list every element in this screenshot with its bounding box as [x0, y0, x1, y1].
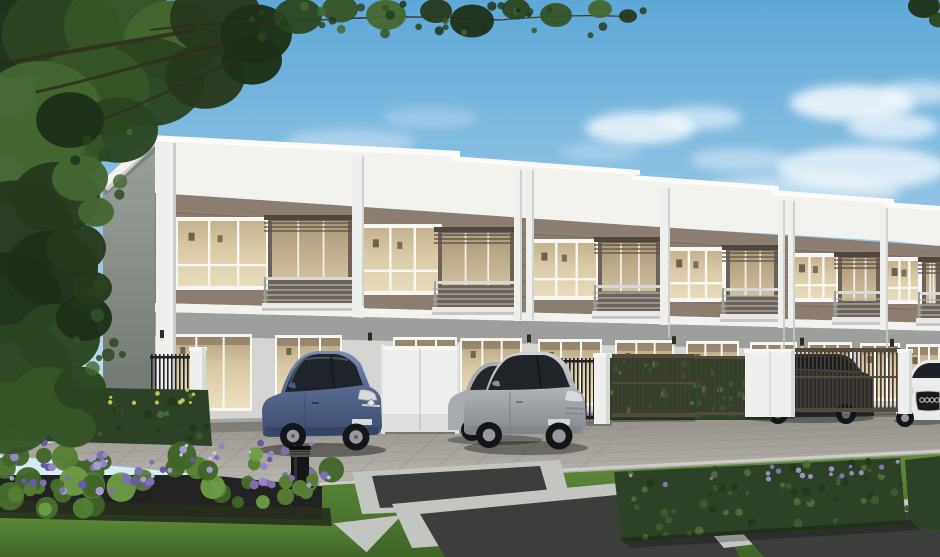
- purple-flower: [167, 468, 172, 473]
- white-car-rim: [901, 414, 909, 422]
- slab-shadow: [432, 312, 520, 315]
- interior-picture: [562, 255, 567, 262]
- lamp-cap: [289, 446, 311, 450]
- leaf-speck: [91, 308, 104, 321]
- gate-slat: [844, 350, 846, 412]
- gate-slat: [800, 350, 802, 412]
- blue-hub: [291, 434, 295, 438]
- hedge-leaf: [670, 524, 674, 528]
- gate-slat: [888, 350, 890, 412]
- upper-window: [174, 217, 270, 290]
- hedge-leaf: [887, 509, 894, 516]
- purple-flower: [130, 477, 139, 486]
- purple-flower: [190, 457, 195, 462]
- purple-flower: [95, 487, 103, 495]
- gate-slat: [804, 350, 806, 412]
- gate-slat: [860, 350, 862, 412]
- leaf-speck: [526, 12, 531, 17]
- purple-flower: [214, 455, 219, 460]
- hedge-leaf: [665, 516, 672, 523]
- leaf-speck: [531, 28, 537, 34]
- window-mullion-v: [208, 221, 210, 286]
- gate-slat: [668, 356, 670, 416]
- gate-slat: [647, 356, 649, 416]
- balcony-glass-doors: [602, 243, 656, 291]
- flower-foliage: [107, 472, 137, 502]
- flower-foliage: [73, 498, 94, 519]
- purple-flower: [109, 488, 115, 494]
- tree-foliage: [54, 367, 106, 410]
- hedge-leaf: [699, 500, 708, 509]
- fin-shade: [532, 170, 534, 320]
- upper-window: [360, 224, 442, 295]
- hedge-flower-speck: [776, 468, 781, 473]
- interior-picture: [180, 347, 185, 354]
- sconce-glow: [161, 338, 164, 341]
- purple-flower: [88, 455, 95, 462]
- white-car-grille: [916, 391, 940, 411]
- hedge-leaf: [861, 498, 867, 504]
- hedge-leaf: [840, 477, 849, 486]
- hedge-leaf: [671, 509, 676, 514]
- cloud: [560, 142, 640, 162]
- hedge-leaf: [164, 411, 169, 416]
- window-mullion-v: [555, 243, 557, 296]
- pergola-beam: [434, 227, 518, 232]
- gate-slat: [832, 350, 834, 412]
- purple-flower: [29, 479, 37, 487]
- yellow-flower: [192, 393, 195, 396]
- pillar-shade: [606, 354, 610, 424]
- balcony-door-mullion: [487, 233, 489, 285]
- fin-shade: [668, 188, 670, 338]
- leaf-speck: [482, 25, 487, 30]
- window-mullion-v: [898, 261, 900, 300]
- gate-bottom-shade: [383, 414, 457, 432]
- leaf-speck: [258, 33, 267, 42]
- balcony-slab: [832, 317, 886, 322]
- gate-rail: [612, 354, 695, 358]
- purple-flower: [289, 475, 295, 481]
- fence-bar: [719, 358, 721, 416]
- purple-flower: [41, 462, 47, 468]
- hedge-leaf: [786, 483, 792, 489]
- fence-bar: [710, 358, 712, 416]
- gate-slat: [659, 356, 661, 416]
- gate-slat: [836, 350, 838, 412]
- leaf-speck: [487, 2, 496, 11]
- purple-flower: [268, 481, 276, 489]
- upper-window: [790, 253, 840, 302]
- yellow-flower: [185, 388, 189, 392]
- purple-flower: [48, 463, 56, 471]
- window-glass: [794, 257, 836, 298]
- hedge-leaf: [866, 458, 872, 464]
- leaf-speck: [102, 348, 115, 361]
- gate-slat: [634, 356, 636, 416]
- slab-shadow: [832, 322, 886, 325]
- interior-picture: [373, 239, 379, 247]
- hedge-flower-speck: [770, 465, 774, 469]
- hedge-leaf: [626, 478, 633, 485]
- hedge-flower-speck: [829, 472, 833, 476]
- pergola-beam: [918, 257, 940, 262]
- wall-sconce: [160, 330, 164, 338]
- hedge-leaf: [642, 486, 648, 492]
- hedge-leaf: [778, 506, 787, 515]
- window-mullion-v: [808, 257, 810, 298]
- flower-highlight: [212, 451, 216, 455]
- hedge-leaf: [807, 497, 812, 502]
- hedge-leaf: [176, 422, 183, 429]
- flower-foliage: [256, 495, 270, 509]
- leaf-speck: [587, 32, 593, 38]
- flower-foliage: [249, 447, 263, 461]
- window-glass: [670, 251, 722, 298]
- yellow-flower: [155, 391, 160, 396]
- purple-flower: [78, 480, 87, 489]
- leaf-speck: [113, 174, 127, 188]
- hedge-leaf: [631, 496, 636, 501]
- purple-flower: [219, 442, 225, 448]
- hedge-leaf: [196, 433, 203, 440]
- gate-slat: [613, 356, 615, 416]
- balcony: [832, 252, 886, 325]
- window-glass: [888, 261, 918, 300]
- window-mullion-h: [888, 287, 918, 289]
- interior-picture: [471, 351, 476, 358]
- hedge-leaf: [735, 508, 743, 516]
- gate-slat: [872, 350, 874, 412]
- window-mullion-v: [688, 251, 690, 298]
- wall-sconce: [672, 336, 676, 344]
- yellow-flower: [109, 396, 112, 399]
- scene-svg: [0, 0, 940, 557]
- wall-sconce: [527, 334, 531, 342]
- wall-sconce: [890, 339, 894, 347]
- hedge-flower-speck: [829, 466, 834, 471]
- interior-picture: [892, 268, 898, 276]
- balcony-door-mullion: [465, 233, 467, 285]
- fence-bar: [696, 358, 698, 416]
- gate-slat: [680, 356, 682, 416]
- gate-slat: [638, 356, 640, 416]
- tree-foliage: [36, 92, 104, 148]
- hedge-leaf: [818, 484, 825, 491]
- hedge-leaf: [703, 476, 708, 481]
- leaf-speck: [461, 29, 467, 35]
- hedge-leaf: [867, 468, 871, 472]
- leaf-speck: [109, 338, 118, 347]
- hedge-flower-speck: [896, 460, 900, 464]
- fence-shadow: [795, 413, 902, 417]
- hedge-leaf: [885, 471, 892, 478]
- purple-flower: [149, 460, 154, 465]
- silver-door-handle: [516, 401, 523, 403]
- interior-picture: [799, 264, 805, 272]
- balcony: [592, 237, 666, 319]
- fin-shade: [783, 200, 785, 350]
- gate-slat: [892, 350, 894, 412]
- fence-bar: [737, 358, 739, 416]
- leaf-speck: [599, 22, 608, 31]
- fence-bar: [723, 358, 725, 416]
- leaf-speck: [383, 5, 390, 12]
- door-glass-top-shade: [277, 338, 340, 346]
- gate-slat: [880, 350, 882, 412]
- gate-slat: [820, 350, 822, 412]
- leaf-speck: [300, 2, 309, 11]
- purple-flower: [93, 461, 102, 470]
- gate-slat: [684, 356, 686, 416]
- leaf-speck: [317, 7, 327, 17]
- leaf-speck: [119, 351, 126, 358]
- hedge-leaf: [660, 509, 668, 517]
- purple-flower: [268, 451, 274, 457]
- door-glass-top-shade: [617, 343, 672, 351]
- hedge-leaf: [145, 401, 151, 407]
- rendering-townhouse-scene: [0, 0, 940, 557]
- purple-flower: [140, 476, 146, 482]
- upper-window: [530, 239, 600, 300]
- hedge-leaf: [833, 518, 838, 523]
- hedge-leaf: [777, 489, 784, 496]
- window-glass: [178, 221, 266, 286]
- purple-flower: [134, 467, 142, 475]
- gate-slat: [864, 350, 866, 412]
- lamp-diffuser: [290, 449, 310, 457]
- gate-rail: [795, 408, 900, 412]
- slab-shadow: [592, 316, 666, 319]
- tree-foliage: [52, 155, 108, 201]
- window-mullion-v: [414, 228, 416, 291]
- balcony: [262, 215, 358, 311]
- fin-shade: [793, 201, 795, 351]
- hedge-leaf: [203, 424, 209, 430]
- leaf-speck: [435, 26, 444, 35]
- gate-slat: [676, 356, 678, 416]
- tree-leaf-cluster: [588, 0, 612, 18]
- fence-bar: [732, 358, 734, 416]
- hedge-flower-speck: [663, 482, 668, 487]
- flower-highlight: [249, 451, 252, 454]
- hedge-leaf: [871, 495, 880, 504]
- leaf-speck: [82, 136, 92, 146]
- hedge-flower-speck: [796, 467, 802, 473]
- fence-shadow: [612, 418, 695, 422]
- hedge-leaf: [899, 482, 903, 486]
- slab-shadow: [262, 308, 358, 311]
- hedge-leaf: [876, 483, 880, 487]
- hedge-leaf: [709, 506, 717, 514]
- interior-picture: [397, 242, 402, 249]
- yellow-flower: [108, 400, 112, 404]
- hedge-leaf: [861, 465, 867, 471]
- fence-bar: [701, 358, 703, 416]
- gate-slat: [689, 356, 691, 416]
- interior-picture: [286, 348, 291, 355]
- gate-slat: [651, 356, 653, 416]
- hedge-leaf: [731, 484, 738, 491]
- hedge-leaf: [707, 491, 711, 495]
- hedge-speck: [728, 381, 734, 387]
- tree-leaf-cluster: [619, 9, 637, 23]
- gate-slat: [812, 350, 814, 412]
- gate-slat: [824, 350, 826, 412]
- tree-leaf-cluster: [450, 5, 494, 38]
- hedge-leaf: [811, 469, 816, 474]
- railing-top: [917, 292, 940, 295]
- leaf-speck: [85, 361, 99, 375]
- hedge-leaf: [143, 410, 152, 419]
- leaf-speck: [329, 17, 337, 25]
- fin-shade: [362, 156, 364, 306]
- window-mullion-v: [237, 221, 239, 286]
- door-glass-top-shade: [168, 337, 250, 345]
- flower-highlight: [151, 474, 155, 478]
- pergola-beam: [722, 245, 782, 250]
- hedge-leaf: [116, 426, 122, 432]
- gate-slat: [884, 350, 886, 412]
- leaf-speck: [67, 393, 76, 402]
- door-mullion: [223, 337, 225, 408]
- hedge-leaf: [728, 491, 732, 495]
- gate-rail: [612, 382, 695, 384]
- leaf-speck: [94, 277, 109, 292]
- hedge-leaf: [849, 501, 855, 507]
- railing-top: [263, 277, 357, 280]
- hedge-leaf: [716, 478, 722, 484]
- leaf-speck: [96, 355, 102, 361]
- hedge-leaf: [848, 511, 856, 519]
- leaf-speck: [70, 155, 80, 165]
- yellow-flower: [132, 401, 136, 405]
- fence-rail: [695, 412, 752, 415]
- leaf-speck: [385, 10, 395, 20]
- balcony-door-mullion: [638, 243, 640, 291]
- cloud: [658, 106, 742, 130]
- gate-rail: [795, 348, 900, 352]
- flower-highlight: [185, 444, 188, 447]
- gate-slat: [868, 350, 870, 412]
- gate-slat: [876, 350, 878, 412]
- fence-bar: [728, 358, 730, 416]
- interior-picture: [693, 261, 698, 268]
- purple-flower: [147, 478, 154, 485]
- purple-flower: [267, 457, 273, 463]
- window-mullion-h: [670, 282, 722, 284]
- upper-window: [884, 257, 922, 304]
- cloud: [847, 113, 939, 141]
- gate-rail: [795, 376, 900, 378]
- railing-top: [833, 291, 885, 294]
- wall-sconce: [800, 338, 804, 346]
- gate-slat: [617, 356, 619, 416]
- leaf-speck: [516, 8, 521, 13]
- silver-rim: [483, 429, 496, 442]
- leaf-speck: [112, 405, 122, 415]
- hedge-leaf: [646, 479, 654, 487]
- hedge-flower-speck: [710, 477, 713, 480]
- interior-picture: [189, 233, 195, 241]
- hedge-flower-speck: [849, 465, 853, 469]
- hedge-leaf: [167, 402, 172, 407]
- purple-flower: [281, 447, 289, 455]
- tree-foliage: [78, 197, 114, 227]
- hedge-flower-speck: [839, 473, 844, 478]
- gate-slat: [655, 356, 657, 416]
- pergola-beam: [264, 215, 356, 220]
- hedge-leaf: [744, 469, 751, 476]
- balcony-door-mullion: [323, 221, 325, 278]
- leaf-speck: [126, 129, 132, 135]
- leaf-speck: [114, 189, 124, 199]
- balcony-glass-doors: [272, 221, 348, 278]
- pergola-beam: [834, 252, 884, 257]
- hedge-leaf: [793, 498, 800, 505]
- hedge-leaf: [190, 425, 197, 432]
- purple-flower: [9, 476, 14, 481]
- tree-foliage: [46, 223, 106, 272]
- railing-top: [593, 285, 665, 288]
- leaf-speck: [337, 25, 346, 34]
- hedge-leaf: [780, 483, 785, 488]
- hedge-leaf: [803, 460, 811, 468]
- flower-highlight: [208, 456, 212, 460]
- window-mullion-v: [389, 228, 391, 291]
- balcony-glass-doors: [442, 233, 510, 285]
- pillar-shade: [909, 350, 912, 414]
- balcony-slab: [262, 303, 358, 308]
- flower-foliage: [299, 485, 313, 499]
- hedge-flower-speck: [849, 471, 854, 476]
- gate-rail: [612, 413, 695, 417]
- hedge-leaf: [864, 477, 868, 481]
- window-mullion-h: [178, 264, 266, 266]
- upper-window: [666, 247, 726, 302]
- gate-slat: [856, 350, 858, 412]
- window-mullion-v: [705, 251, 707, 298]
- interior-picture: [541, 253, 547, 261]
- window-mullion-h: [794, 284, 836, 286]
- purple-flower: [306, 482, 311, 487]
- gate-slat: [848, 350, 850, 412]
- gate-slat: [828, 350, 830, 412]
- flower-highlight: [327, 476, 331, 480]
- leaf-speck: [357, 3, 365, 11]
- leaf-speck: [415, 23, 422, 30]
- leaf-speck: [319, 22, 326, 29]
- fence-bar: [714, 358, 716, 416]
- leaf-speck: [380, 29, 390, 39]
- hedge-flower-speck: [766, 476, 771, 481]
- window-mullion-h: [534, 278, 596, 280]
- hedge-leaf: [794, 519, 803, 528]
- cloud: [690, 148, 790, 172]
- fence-bar: [589, 358, 591, 420]
- purple-flower: [21, 478, 26, 483]
- hedge-leaf: [890, 488, 898, 496]
- gate-slat: [672, 356, 674, 416]
- yellow-flower: [189, 401, 192, 404]
- hedge-leaf: [748, 492, 753, 497]
- interior-picture: [676, 259, 682, 267]
- blue-door-handle: [312, 402, 319, 404]
- gate-slat: [642, 356, 644, 416]
- leaf-speck: [258, 10, 264, 16]
- gate-slat: [808, 350, 810, 412]
- window-glass: [534, 243, 596, 296]
